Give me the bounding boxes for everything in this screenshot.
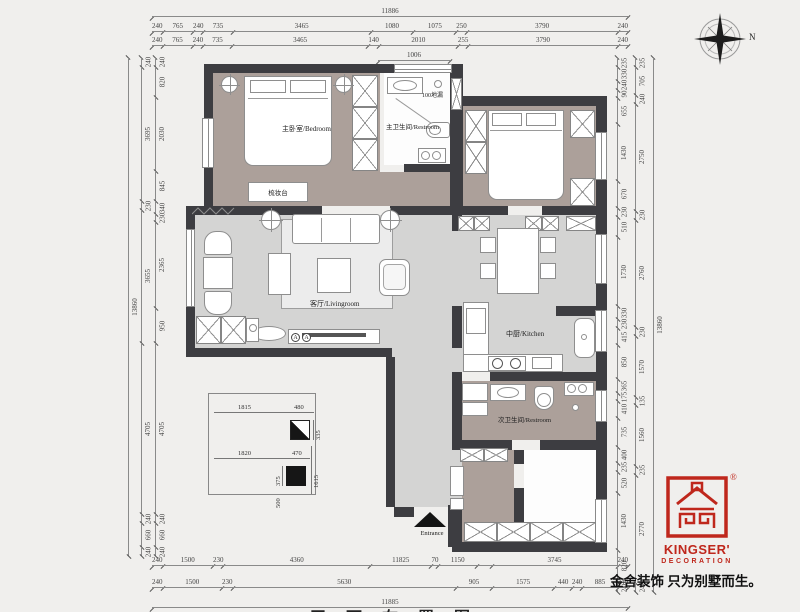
dim-value: 5630 bbox=[337, 578, 351, 586]
dim-segment: 850 bbox=[617, 345, 630, 379]
wall bbox=[490, 372, 606, 381]
registered-mark: ® bbox=[730, 472, 737, 482]
dim-segment: 230 bbox=[617, 208, 630, 217]
dim-segment: 2365 bbox=[155, 222, 168, 308]
dim-segment bbox=[477, 553, 491, 566]
wardrobe-cell bbox=[352, 107, 378, 139]
dim-value: 2750 bbox=[638, 150, 646, 164]
wall bbox=[186, 215, 195, 229]
dim-value: 235 bbox=[620, 462, 628, 473]
inset-dim-1815: 1815 bbox=[238, 404, 251, 411]
dim-value: 1560 bbox=[638, 428, 646, 442]
inset-dim-335: 335 bbox=[315, 430, 322, 440]
dim-segment: 845 bbox=[155, 171, 168, 202]
dim-value: 1430 bbox=[620, 514, 628, 528]
dim-value: 1570 bbox=[638, 360, 646, 374]
dim-right-outer: 2357052402750230276023015701351560235277… bbox=[635, 58, 648, 592]
section-mark-a: A bbox=[291, 333, 300, 342]
dim-value: 885 bbox=[595, 578, 606, 586]
washer-knob bbox=[421, 151, 430, 160]
dim-value: 1500 bbox=[181, 556, 195, 564]
dim-segment: 735 bbox=[203, 33, 232, 46]
dim-value: 1500 bbox=[185, 578, 199, 586]
dim-segment: 440 bbox=[554, 575, 571, 588]
wardrobe-cell bbox=[484, 448, 508, 462]
coffee-table bbox=[317, 258, 351, 293]
burner bbox=[510, 358, 521, 369]
dim-segment: 5630 bbox=[233, 575, 456, 588]
brand-slogan: 金舍装饰 只为别墅而生。 bbox=[610, 570, 762, 590]
dim-value: 400 bbox=[620, 450, 628, 461]
dim-value: 850 bbox=[620, 357, 628, 368]
dim-bottom-row2: 240150023056309051575440240885240 bbox=[152, 575, 628, 588]
window bbox=[595, 310, 607, 352]
master-bathroom-label: 主卫生间/Restroom bbox=[386, 121, 439, 131]
dim-segment: 410 bbox=[617, 401, 630, 417]
dim-value: 4705 bbox=[158, 422, 166, 436]
wardrobe-cell bbox=[570, 178, 595, 206]
dim-segment: 950 bbox=[155, 308, 168, 343]
dim-value: 240 bbox=[144, 546, 152, 557]
sofa bbox=[292, 214, 380, 244]
shoe-cabinet-cell bbox=[221, 316, 246, 344]
dim-value: 13860 bbox=[656, 316, 664, 334]
dim-segment: 240 bbox=[152, 33, 163, 46]
wall bbox=[540, 440, 606, 450]
dim-value: 4360 bbox=[290, 556, 304, 564]
dim-value: 3655 bbox=[144, 269, 152, 283]
dim-segment: 240 bbox=[152, 19, 163, 32]
wall bbox=[390, 206, 508, 215]
dim-segment: 330 bbox=[617, 306, 630, 319]
pillow bbox=[290, 80, 326, 93]
dim-segment: 240 bbox=[141, 514, 154, 523]
dim-segment: 2770 bbox=[635, 475, 648, 583]
dim-value: 255 bbox=[458, 36, 469, 44]
dim-value: 140 bbox=[368, 36, 379, 44]
dim-segment: 240 bbox=[155, 514, 168, 523]
pillow bbox=[526, 113, 556, 126]
sink-bowl bbox=[393, 80, 417, 91]
dim-segment: 4705 bbox=[155, 343, 168, 514]
sofa-divider bbox=[321, 218, 322, 242]
cabinet-cell bbox=[566, 216, 596, 231]
inset-square-solid bbox=[286, 466, 306, 486]
inset-dim-500: 500 bbox=[275, 498, 282, 508]
dim-segment: 240 bbox=[618, 33, 629, 46]
dim-segment: 240 bbox=[141, 547, 154, 556]
dim-value: 13860 bbox=[131, 298, 139, 316]
nightstand bbox=[335, 76, 352, 93]
drain2 bbox=[572, 404, 579, 411]
dim-segment: 1430 bbox=[617, 493, 630, 550]
dim-segment: 230 bbox=[155, 214, 168, 222]
dim-value: 240 bbox=[152, 36, 163, 44]
dim-segment: 1730 bbox=[617, 237, 630, 306]
dim-segment: 135 bbox=[635, 397, 648, 405]
dim-value: 1080 bbox=[385, 22, 399, 30]
wall bbox=[452, 306, 462, 348]
dim-segment: 240 bbox=[617, 81, 630, 91]
balcony-chair bbox=[204, 291, 232, 315]
dim-segment: 2010 bbox=[379, 33, 458, 46]
dim-segment: 140 bbox=[368, 33, 379, 46]
dim-bottom-row1: 24015002304360118257011503745240 bbox=[152, 553, 628, 566]
dim-value: 330 bbox=[620, 69, 628, 80]
dim-value: 660 bbox=[158, 530, 166, 541]
dim-value: 1006 bbox=[407, 51, 421, 59]
dim-segment: 3695 bbox=[141, 67, 154, 202]
bath2-cabinet bbox=[462, 402, 488, 416]
dim-value: 250 bbox=[456, 22, 467, 30]
dim-segment: 70 bbox=[431, 553, 438, 566]
dim-value: 2770 bbox=[638, 522, 646, 536]
dim-value: 90 bbox=[620, 91, 628, 98]
side-table bbox=[261, 210, 281, 230]
wall bbox=[462, 96, 606, 106]
dim-value: 1150 bbox=[451, 556, 465, 564]
wall bbox=[204, 64, 213, 118]
wall bbox=[448, 505, 462, 547]
floor-plan-canvas: 11886 2407652407353465108010752503790240… bbox=[0, 0, 800, 612]
second-bathroom-label: 次卫生间/Restroom bbox=[498, 414, 551, 424]
dim-segment: 2760 bbox=[635, 220, 648, 327]
basin-bowl bbox=[497, 387, 519, 398]
dim-value: 4705 bbox=[144, 422, 152, 436]
inset-dim-1820: 1820 bbox=[238, 450, 251, 457]
dim-segment: 1570 bbox=[635, 336, 648, 397]
dim-segment: 240 bbox=[635, 95, 648, 104]
window bbox=[595, 390, 607, 422]
dim-value: 765 bbox=[172, 22, 183, 30]
dressing-table: 梳妆台 bbox=[248, 182, 308, 202]
dim-segment: 820 bbox=[155, 67, 168, 97]
dim-segment: 765 bbox=[163, 19, 193, 32]
dim-value: 705 bbox=[638, 76, 646, 87]
window bbox=[595, 499, 607, 543]
dim-bath-window: 1006 bbox=[378, 51, 450, 61]
dim-segment: 1560 bbox=[635, 405, 648, 466]
inset-dim-line bbox=[311, 446, 312, 494]
dim-segment: 1500 bbox=[163, 553, 213, 566]
inset-square-half bbox=[290, 420, 310, 440]
dim-value: 1575 bbox=[516, 578, 530, 586]
dim-segment: 250 bbox=[456, 19, 467, 32]
balcony-chair bbox=[204, 231, 232, 255]
pillow bbox=[250, 80, 286, 93]
wall bbox=[514, 450, 524, 464]
dressing-table-label: 梳妆台 bbox=[268, 187, 288, 197]
window bbox=[394, 64, 452, 73]
dim-segment: 235 bbox=[617, 58, 630, 67]
inset-dim-480: 480 bbox=[294, 404, 304, 411]
living-room-label: 客厅/Livingroom bbox=[310, 299, 359, 309]
section-mark-label: A bbox=[293, 335, 297, 341]
wardrobe-cell bbox=[352, 75, 378, 107]
entry-cabinet bbox=[450, 466, 464, 496]
dim-segment: 235 bbox=[635, 58, 648, 67]
wardrobe-cell bbox=[530, 522, 563, 542]
dim-segment: 2750 bbox=[635, 104, 648, 211]
inset-dim-375: 375 bbox=[275, 476, 282, 486]
dim-segment: 1575 bbox=[492, 575, 555, 588]
dim-segment: 1080 bbox=[371, 19, 414, 32]
pillow bbox=[492, 113, 522, 126]
tv bbox=[302, 333, 366, 337]
curtain-wave bbox=[192, 206, 236, 216]
dim-segment: 520 bbox=[617, 472, 630, 493]
dim-segment: 255 bbox=[458, 33, 469, 46]
wardrobe-cell bbox=[465, 142, 487, 174]
dim-value: 240 bbox=[158, 546, 166, 557]
dining-chair bbox=[540, 237, 556, 253]
brand-name: KINGSER' bbox=[660, 542, 734, 557]
window bbox=[186, 229, 195, 307]
dim-value: 735 bbox=[620, 427, 628, 438]
dim-segment: 230 bbox=[635, 211, 648, 220]
dim-left-inner: 240820203084534023023659504705240660240 bbox=[155, 58, 168, 556]
dim-segment: 1150 bbox=[438, 553, 477, 566]
wardrobe-cell bbox=[464, 522, 497, 542]
dim-value: 510 bbox=[620, 222, 628, 233]
wardrobe-cell bbox=[460, 448, 484, 462]
cabinet-cell bbox=[458, 216, 474, 231]
dim-segment: 240 bbox=[193, 33, 204, 46]
dim-value: 765 bbox=[172, 36, 183, 44]
dim-value: 415 bbox=[620, 331, 628, 342]
wall bbox=[452, 542, 607, 552]
dim-segment: 1430 bbox=[617, 124, 630, 181]
inset-dim-line bbox=[282, 466, 283, 486]
dim-value: 410 bbox=[620, 404, 628, 415]
dim-segment: 230 bbox=[213, 553, 224, 566]
wardrobe-cell bbox=[352, 139, 378, 171]
entrance-arrow bbox=[414, 512, 446, 527]
dim-segment: 670 bbox=[617, 181, 630, 208]
cabinet-cell bbox=[542, 216, 559, 231]
wall bbox=[204, 64, 394, 73]
entry-cabinet bbox=[450, 498, 464, 510]
side-table bbox=[380, 210, 400, 230]
sofa-divider bbox=[350, 218, 351, 242]
inset-dim-line bbox=[286, 458, 310, 459]
dim-segment: 90 bbox=[617, 90, 630, 98]
washer2-knob bbox=[578, 384, 587, 393]
dim-segment: 4360 bbox=[223, 553, 370, 566]
dim-value: 3790 bbox=[535, 22, 549, 30]
dim-top-row2: 240765240735346514020102553790240 bbox=[152, 33, 628, 46]
dining-chair bbox=[480, 237, 496, 253]
kitchen-label: 中厨/Kitchen bbox=[506, 329, 544, 339]
dining-table bbox=[497, 228, 539, 294]
dim-value: 2010 bbox=[411, 36, 425, 44]
dim-value: 660 bbox=[144, 530, 152, 541]
dim-value: 1730 bbox=[620, 265, 628, 279]
floor-drain bbox=[434, 80, 442, 88]
dim-value: 820 bbox=[158, 76, 166, 87]
dim-value: 735 bbox=[212, 36, 223, 44]
window bbox=[595, 132, 607, 180]
window bbox=[595, 234, 607, 284]
dim-right-inner: 2353302409065514306702305101730330230415… bbox=[617, 58, 630, 592]
dim-segment: 230 bbox=[635, 327, 648, 336]
dim-value: 905 bbox=[469, 578, 480, 586]
dim-segment: 735 bbox=[617, 418, 630, 447]
dim-segment: 230 bbox=[141, 201, 154, 209]
wall bbox=[452, 372, 462, 442]
dim-segment: 1075 bbox=[413, 19, 456, 32]
dim-segment: 175 bbox=[617, 393, 630, 401]
wall bbox=[186, 348, 392, 357]
small-appliance bbox=[532, 357, 552, 369]
dim-value: 3745 bbox=[548, 556, 562, 564]
blanket-fold bbox=[248, 98, 328, 99]
wall bbox=[404, 164, 452, 172]
dim-value: 950 bbox=[158, 320, 166, 331]
dim-left-outer: 240369523036554705240660240 bbox=[141, 58, 154, 556]
dim-segment: 240 bbox=[572, 575, 583, 588]
dim-value: 670 bbox=[620, 189, 628, 200]
dim-segment: 3745 bbox=[492, 553, 618, 566]
compass-icon bbox=[694, 13, 746, 65]
nightstand bbox=[221, 76, 238, 93]
inset-dim-470: 470 bbox=[292, 450, 302, 457]
section-mark-a: A bbox=[302, 333, 311, 342]
washer-knob bbox=[432, 151, 441, 160]
dining-chair bbox=[540, 263, 556, 279]
dim-segment: 4705 bbox=[141, 343, 154, 514]
side-cabinet bbox=[268, 253, 291, 295]
dim-value: 3465 bbox=[295, 22, 309, 30]
floor-dressing-corridor bbox=[380, 172, 451, 206]
dim-segment: 1500 bbox=[163, 575, 223, 588]
dim-value: 235 bbox=[620, 57, 628, 68]
dim-value: 240 bbox=[193, 22, 204, 30]
dim-segment: 13860 bbox=[128, 58, 140, 556]
entrance-label: Entrance bbox=[404, 530, 460, 537]
dim-segment: 705 bbox=[635, 67, 648, 94]
dim-value: 70 bbox=[431, 556, 438, 564]
dim-segment: 415 bbox=[617, 328, 630, 345]
dim-value: 240 bbox=[152, 22, 163, 30]
dim-value: 11886 bbox=[381, 7, 398, 15]
dim-value: 735 bbox=[213, 22, 224, 30]
dim-segment: 240 bbox=[193, 19, 204, 32]
dining-chair bbox=[480, 263, 496, 279]
wall bbox=[394, 507, 414, 517]
kingser-logo-icon bbox=[666, 476, 728, 538]
blanket-fold bbox=[490, 130, 562, 131]
dim-value: 1430 bbox=[620, 146, 628, 160]
dim-segment: 3790 bbox=[468, 33, 617, 46]
dim-value: 655 bbox=[620, 106, 628, 117]
footer-partial-title: 平面布置图 bbox=[310, 604, 490, 612]
dim-segment: 235 bbox=[617, 463, 630, 472]
dim-value: 1075 bbox=[428, 22, 442, 30]
dim-segment: 510 bbox=[617, 217, 630, 237]
dim-segment: 11825 bbox=[370, 553, 431, 566]
dim-right-total: 13860 bbox=[653, 58, 665, 592]
dim-value: 240 bbox=[152, 578, 163, 586]
compass-north-label: N bbox=[749, 32, 756, 42]
dim-value: 240 bbox=[620, 80, 628, 91]
dim-value: 240 bbox=[618, 36, 629, 44]
bath2-cabinet bbox=[462, 383, 488, 401]
dim-segment: 240 bbox=[141, 58, 154, 67]
inset-dim-line bbox=[290, 412, 314, 413]
dim-segment: 3790 bbox=[467, 19, 618, 32]
dim-value: 845 bbox=[158, 181, 166, 192]
dim-value: 520 bbox=[620, 477, 628, 488]
inset-dim-line bbox=[313, 420, 314, 440]
dim-segment: 3465 bbox=[232, 33, 368, 46]
burner bbox=[492, 358, 503, 369]
armchair-back bbox=[383, 264, 406, 290]
dim-segment: 230 bbox=[222, 575, 233, 588]
dim-value: 2030 bbox=[158, 127, 166, 141]
inset-dim-line bbox=[214, 458, 286, 459]
dim-segment: 735 bbox=[203, 19, 232, 32]
master-bedroom-label: 主卧室/Bedroom bbox=[282, 124, 331, 134]
toilet2-seat bbox=[537, 393, 551, 407]
wall bbox=[386, 357, 395, 507]
window bbox=[202, 118, 214, 168]
wardrobe-cell bbox=[563, 522, 596, 542]
dim-segment: 230 bbox=[617, 319, 630, 328]
dim-segment: 240 bbox=[152, 575, 163, 588]
dim-value: 240 bbox=[572, 578, 583, 586]
dim-segment: 240 bbox=[155, 547, 168, 556]
section-mark-label: A bbox=[304, 335, 308, 341]
dim-value: 2365 bbox=[158, 258, 166, 272]
dim-top-row1: 2407652407353465108010752503790240 bbox=[152, 19, 628, 32]
brand-subtitle: DECORATION bbox=[660, 558, 734, 565]
inset-dim-1615: 1615 bbox=[313, 475, 320, 488]
dim-value: 230 bbox=[222, 578, 233, 586]
dim-segment: 2030 bbox=[155, 97, 168, 171]
dim-segment: 765 bbox=[163, 33, 193, 46]
kitchen-board bbox=[466, 308, 486, 334]
dim-value: 440 bbox=[558, 578, 569, 586]
dim-value: 240 bbox=[193, 36, 204, 44]
dim-segment: 1006 bbox=[378, 51, 450, 61]
dim-value: 3790 bbox=[536, 36, 550, 44]
dim-value: 3465 bbox=[293, 36, 307, 44]
wardrobe-cell bbox=[570, 110, 595, 138]
dim-segment: 660 bbox=[141, 523, 154, 547]
dim-segment: 240 bbox=[618, 19, 629, 32]
dim-segment: 3655 bbox=[141, 210, 154, 343]
dim-value: 11825 bbox=[392, 556, 409, 564]
balcony-table bbox=[203, 257, 233, 289]
washer2-knob bbox=[567, 384, 576, 393]
dim-segment: 13860 bbox=[653, 58, 665, 592]
dim-value: 3695 bbox=[144, 127, 152, 141]
dim-segment: 3465 bbox=[233, 19, 371, 32]
dim-value: 365 bbox=[620, 381, 628, 392]
cabinet-sink-bowl bbox=[249, 324, 257, 332]
wardrobe-cell bbox=[465, 110, 487, 142]
dim-segment: 240 bbox=[155, 58, 168, 67]
wardrobe-cell bbox=[497, 522, 530, 542]
floor-drain-label: 100地漏 bbox=[422, 90, 443, 99]
dim-segment: 11886 bbox=[152, 5, 628, 17]
dim-segment: 235 bbox=[635, 466, 648, 475]
dim-segment: 655 bbox=[617, 98, 630, 124]
faucet bbox=[581, 334, 587, 340]
cabinet-cell bbox=[474, 216, 490, 231]
inset-dim-line bbox=[214, 412, 290, 413]
